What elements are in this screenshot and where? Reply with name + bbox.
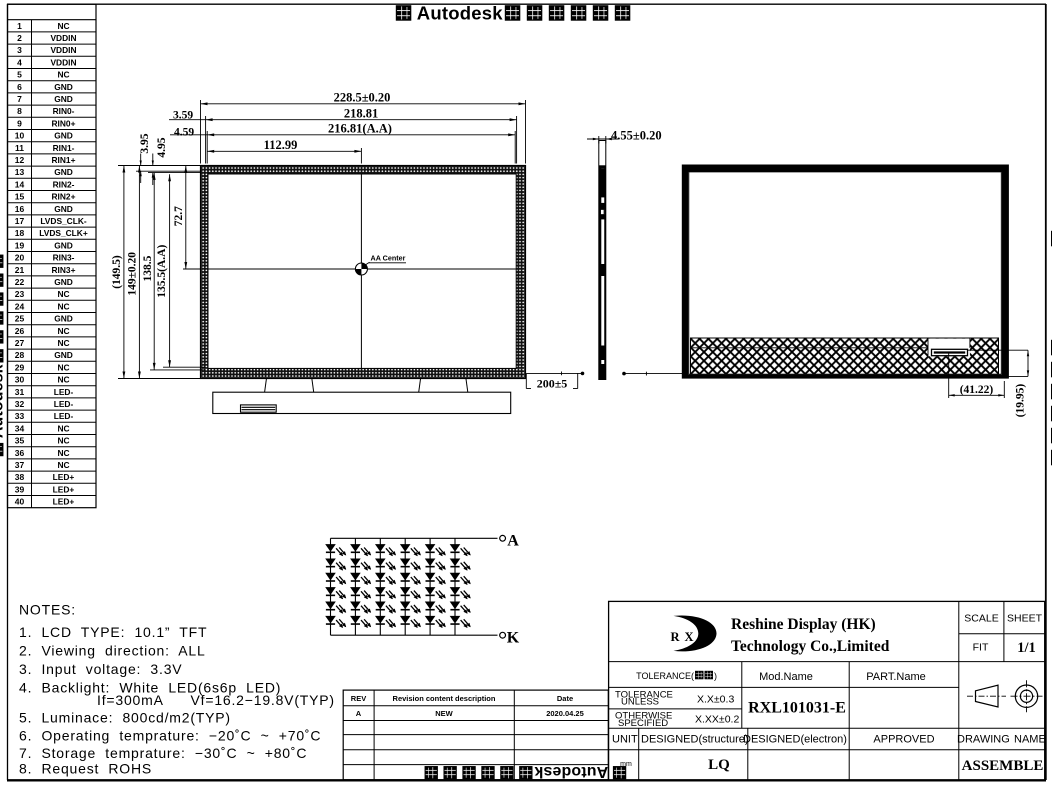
svg-text:AA Center: AA Center bbox=[371, 254, 406, 263]
svg-text:9: 9 bbox=[17, 118, 22, 128]
svg-text:200±5: 200±5 bbox=[537, 376, 568, 390]
svg-text:Mod.Name: Mod.Name bbox=[759, 671, 813, 683]
svg-text:FIT: FIT bbox=[973, 642, 989, 654]
svg-text:(41.22): (41.22) bbox=[960, 384, 994, 396]
svg-text:36: 36 bbox=[15, 448, 25, 458]
svg-text:VDDIN: VDDIN bbox=[50, 45, 76, 55]
svg-text:37: 37 bbox=[15, 460, 25, 470]
svg-text:RIN1-: RIN1- bbox=[53, 143, 75, 153]
svg-text:(19.95): (19.95) bbox=[1014, 384, 1026, 418]
svg-text:Technology Co.,Limited: Technology Co.,Limited bbox=[731, 638, 890, 655]
svg-text:4.59: 4.59 bbox=[174, 126, 194, 138]
svg-text:Date: Date bbox=[557, 694, 573, 703]
svg-text:20: 20 bbox=[15, 253, 25, 263]
svg-text:34: 34 bbox=[15, 423, 25, 433]
svg-text:216.81(A.A): 216.81(A.A) bbox=[328, 121, 392, 135]
svg-text:29: 29 bbox=[15, 362, 25, 372]
svg-text:LVDS_CLK-: LVDS_CLK- bbox=[40, 216, 87, 226]
svg-text:PART.Name: PART.Name bbox=[866, 671, 926, 683]
svg-text:RIN0-: RIN0- bbox=[53, 106, 75, 116]
svg-text:138.5: 138.5 bbox=[142, 255, 154, 281]
svg-text:10: 10 bbox=[15, 131, 25, 141]
svg-text:15: 15 bbox=[15, 192, 25, 202]
svg-text:5: 5 bbox=[17, 70, 22, 80]
svg-text:VDDIN: VDDIN bbox=[50, 33, 76, 43]
svg-text:27: 27 bbox=[15, 338, 25, 348]
svg-text:REV: REV bbox=[351, 694, 366, 703]
svg-text:LQ: LQ bbox=[708, 757, 730, 773]
svg-text:SHEET: SHEET bbox=[1007, 613, 1043, 625]
svg-text:RIN1+: RIN1+ bbox=[52, 155, 76, 165]
svg-text:33: 33 bbox=[15, 411, 25, 421]
svg-text:NC: NC bbox=[57, 362, 69, 372]
svg-text:GND: GND bbox=[54, 204, 73, 214]
svg-text:If=300mA Vf=16.2−19.8V(TYP): If=300mA Vf=16.2−19.8V(TYP) bbox=[97, 692, 335, 708]
svg-text:DESIGNED(structure): DESIGNED(structure) bbox=[641, 734, 749, 746]
svg-text:Autodesk: Autodesk bbox=[417, 3, 503, 24]
svg-text:NC: NC bbox=[57, 301, 69, 311]
svg-text:R: R bbox=[671, 630, 681, 644]
svg-text:7. Storage temprature: −30˚C: 7. Storage temprature: −30˚C ~ +80˚C bbox=[19, 745, 307, 761]
svg-text:LED-: LED- bbox=[54, 387, 74, 397]
svg-text:40: 40 bbox=[15, 497, 25, 507]
svg-text:22: 22 bbox=[15, 277, 25, 287]
svg-text:NC: NC bbox=[57, 448, 69, 458]
svg-text:1: 1 bbox=[17, 21, 22, 31]
svg-text:6: 6 bbox=[17, 82, 22, 92]
svg-text:GND: GND bbox=[54, 314, 73, 324]
svg-text:RIN3+: RIN3+ bbox=[52, 265, 76, 275]
svg-text:NC: NC bbox=[57, 21, 69, 31]
svg-text:NC: NC bbox=[57, 460, 69, 470]
svg-text:NC: NC bbox=[57, 70, 69, 80]
svg-text:RIN2-: RIN2- bbox=[53, 179, 75, 189]
svg-text:SPECIFIED: SPECIFIED bbox=[618, 718, 668, 729]
svg-text:TOLERANCE(: TOLERANCE( bbox=[636, 671, 694, 681]
svg-text:NC: NC bbox=[57, 436, 69, 446]
svg-text:Revision content description: Revision content description bbox=[393, 694, 496, 703]
svg-text:19: 19 bbox=[15, 240, 25, 250]
svg-text:NEW: NEW bbox=[435, 709, 453, 718]
svg-text:UNIT: UNIT bbox=[612, 734, 638, 746]
svg-text:A: A bbox=[356, 709, 362, 718]
svg-text:GND: GND bbox=[54, 94, 73, 104]
svg-text:Autodesk: Autodesk bbox=[534, 763, 608, 780]
svg-text:6. Operating temprature: −20˚: 6. Operating temprature: −20˚C ~ +70˚C bbox=[19, 727, 321, 743]
svg-text:8. Request ROHS: 8. Request ROHS bbox=[19, 760, 152, 776]
svg-text:NC: NC bbox=[57, 338, 69, 348]
svg-text:3.95: 3.95 bbox=[139, 133, 151, 153]
svg-text:13: 13 bbox=[15, 167, 25, 177]
svg-text:ASSEMBLE: ASSEMBLE bbox=[962, 758, 1044, 774]
svg-text:GND: GND bbox=[54, 277, 73, 287]
svg-text:14: 14 bbox=[15, 179, 25, 189]
svg-text:LED+: LED+ bbox=[53, 484, 75, 494]
svg-text:mm: mm bbox=[620, 761, 632, 768]
svg-text:18: 18 bbox=[15, 228, 25, 238]
svg-text:3. Input voltage: 3.3V: 3. Input voltage: 3.3V bbox=[19, 661, 182, 677]
svg-text:8: 8 bbox=[17, 106, 22, 116]
svg-text:24: 24 bbox=[15, 301, 25, 311]
svg-text:16: 16 bbox=[15, 204, 25, 214]
svg-text:NC: NC bbox=[57, 423, 69, 433]
svg-text:21: 21 bbox=[15, 265, 25, 275]
svg-text:228.5±0.20: 228.5±0.20 bbox=[334, 90, 391, 104]
svg-text:26: 26 bbox=[15, 326, 25, 336]
svg-text:NAME: NAME bbox=[1014, 734, 1046, 746]
svg-text:25: 25 bbox=[15, 314, 25, 324]
svg-text:28: 28 bbox=[15, 350, 25, 360]
svg-text:DRAWING: DRAWING bbox=[957, 734, 1010, 746]
svg-text:2: 2 bbox=[17, 33, 22, 43]
svg-text:X.X±0.3: X.X±0.3 bbox=[697, 694, 734, 706]
svg-text:39: 39 bbox=[15, 484, 25, 494]
svg-text:3: 3 bbox=[17, 45, 22, 55]
svg-text:RIN2+: RIN2+ bbox=[52, 192, 76, 202]
svg-text:GND: GND bbox=[54, 167, 73, 177]
svg-text:NOTES:: NOTES: bbox=[19, 602, 76, 618]
svg-text:2020.04.25: 2020.04.25 bbox=[546, 709, 584, 718]
svg-text:VDDIN: VDDIN bbox=[50, 57, 76, 67]
svg-text:35: 35 bbox=[15, 436, 25, 446]
svg-text:X: X bbox=[685, 630, 694, 644]
svg-text:11: 11 bbox=[15, 143, 24, 153]
svg-text:149±0.20: 149±0.20 bbox=[127, 252, 139, 296]
svg-text:5. Luminace: 800cd/m2(TYP): 5. Luminace: 800cd/m2(TYP) bbox=[19, 710, 231, 726]
svg-text:30: 30 bbox=[15, 375, 25, 385]
svg-text:LED-: LED- bbox=[54, 399, 74, 409]
svg-text:17: 17 bbox=[15, 216, 25, 226]
svg-text:112.99: 112.99 bbox=[264, 138, 298, 152]
svg-text:Autodesk: Autodesk bbox=[1048, 252, 1052, 338]
svg-text:LED-: LED- bbox=[54, 411, 74, 421]
svg-text:4.55±0.20: 4.55±0.20 bbox=[611, 129, 662, 143]
svg-text:72.7: 72.7 bbox=[173, 206, 185, 226]
svg-text:1/1: 1/1 bbox=[1017, 640, 1036, 656]
svg-text:GND: GND bbox=[54, 350, 73, 360]
svg-text:Reshine Display (HK): Reshine Display (HK) bbox=[731, 616, 876, 633]
svg-text:7: 7 bbox=[17, 94, 22, 104]
svg-text:SCALE: SCALE bbox=[964, 613, 998, 625]
svg-text:LED+: LED+ bbox=[53, 497, 75, 507]
svg-text:GND: GND bbox=[54, 82, 73, 92]
svg-text:RIN3-: RIN3- bbox=[53, 253, 75, 263]
svg-text:GND: GND bbox=[54, 240, 73, 250]
svg-text:GND: GND bbox=[54, 131, 73, 141]
svg-text:218.81: 218.81 bbox=[344, 106, 378, 120]
svg-text:NC: NC bbox=[57, 326, 69, 336]
svg-text:X.XX±0.2: X.XX±0.2 bbox=[695, 714, 739, 726]
svg-text:DESIGNED(electron): DESIGNED(electron) bbox=[743, 734, 847, 746]
svg-text:4.95: 4.95 bbox=[156, 137, 168, 157]
svg-text:Autodesk: Autodesk bbox=[0, 364, 7, 438]
svg-text:38: 38 bbox=[15, 472, 25, 482]
svg-text:LED+: LED+ bbox=[53, 472, 75, 482]
svg-text:31: 31 bbox=[15, 387, 25, 397]
svg-text:4: 4 bbox=[17, 57, 22, 67]
svg-text:135.5(A.A): 135.5(A.A) bbox=[156, 245, 168, 298]
svg-text:RXL101031-E: RXL101031-E bbox=[748, 700, 846, 717]
svg-text:APPROVED: APPROVED bbox=[873, 734, 934, 746]
svg-text:2. Viewing direction: ALL: 2. Viewing direction: ALL bbox=[19, 643, 206, 659]
svg-text:RIN0+: RIN0+ bbox=[52, 118, 76, 128]
svg-text:NC: NC bbox=[57, 289, 69, 299]
svg-text:): ) bbox=[714, 671, 717, 681]
svg-text:A: A bbox=[507, 533, 519, 550]
svg-text:23: 23 bbox=[15, 289, 25, 299]
svg-text:UNLESS: UNLESS bbox=[621, 697, 659, 708]
svg-text:1. LCD TYPE: 10.1” TFT: 1. LCD TYPE: 10.1” TFT bbox=[19, 624, 207, 640]
svg-text:12: 12 bbox=[15, 155, 25, 165]
svg-text:LVDS_CLK+: LVDS_CLK+ bbox=[39, 228, 88, 238]
svg-text:(149.5): (149.5) bbox=[111, 255, 123, 289]
svg-text:32: 32 bbox=[15, 399, 25, 409]
svg-text:NC: NC bbox=[57, 375, 69, 385]
svg-text:K: K bbox=[507, 630, 520, 647]
